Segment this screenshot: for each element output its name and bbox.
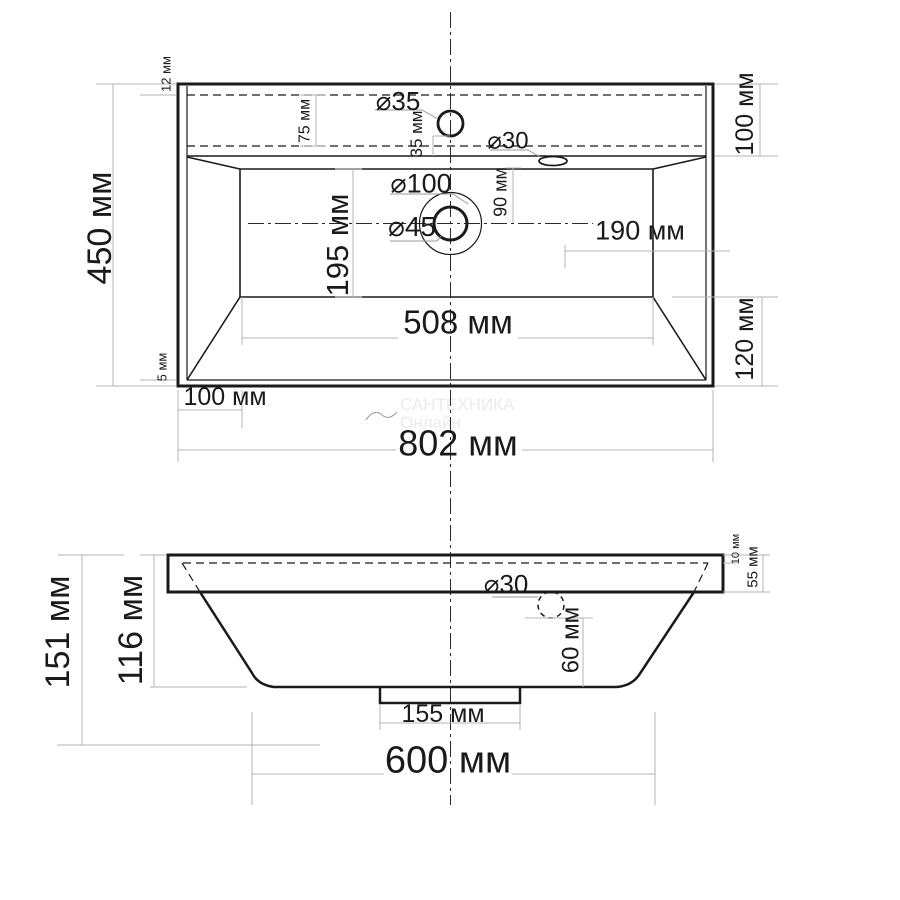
dim-lip-label: 10 мм (730, 534, 742, 564)
dim-total-height-label: 151 мм (39, 576, 77, 689)
technical-drawing-page: САНТЕХНИКА Онлайн (0, 0, 900, 900)
watermark-line1: САНТЕХНИКА (400, 395, 515, 414)
washbasin-dimension-drawing: САНТЕХНИКА Онлайн (0, 0, 900, 900)
front-overflow-dia-label: ⌀30 (484, 569, 529, 599)
bowl-width-label: 508 мм (403, 304, 513, 341)
dim-slab-thickness-label: 55 мм (744, 546, 761, 587)
dim-deck-height-label: 100 мм (731, 72, 759, 155)
dim-back-rim-label: 5 мм (155, 353, 170, 382)
drain-offset-label: 90 мм (490, 167, 510, 217)
bowl-depth-label: 195 мм (320, 194, 355, 297)
deck-slab (168, 555, 723, 592)
dim-depth-label: 450 мм (81, 172, 119, 285)
basin-body (200, 592, 694, 687)
watermark-squiggle (366, 412, 397, 420)
dim-bowl-offset-back-label: 120 мм (731, 297, 759, 380)
faucet-hole-offset-label: 35 мм (407, 110, 426, 157)
dim-front-rim-label: 12 мм (159, 56, 174, 92)
dim-drain-stub-width-label: 155 мм (401, 700, 484, 728)
dim-body-height-label: 116 мм (112, 575, 150, 685)
drain-inner-dia-label: ⌀45 (388, 211, 436, 242)
drain-outer-dia-label: ⌀100 (390, 168, 451, 198)
dim-width-label: 802 мм (398, 423, 518, 464)
overflow-dia-label: ⌀30 (487, 127, 528, 154)
bowl-offset-left-label: 100 мм (183, 383, 266, 411)
front-view: 151 мм 116 мм 10 мм 55 мм ⌀30 60 мм 155 … (39, 534, 770, 805)
deck-hidden-edges (187, 95, 706, 146)
overflow-hole-top (539, 157, 567, 166)
dim-overflow-to-bottom-label: 60 мм (557, 607, 584, 673)
drain-to-right-label: 190 мм (595, 215, 685, 245)
dim-body-width-label: 600 мм (385, 739, 511, 781)
slab-hidden-diagonals (182, 563, 708, 592)
dim-deck-band-label: 75 мм (297, 99, 314, 143)
